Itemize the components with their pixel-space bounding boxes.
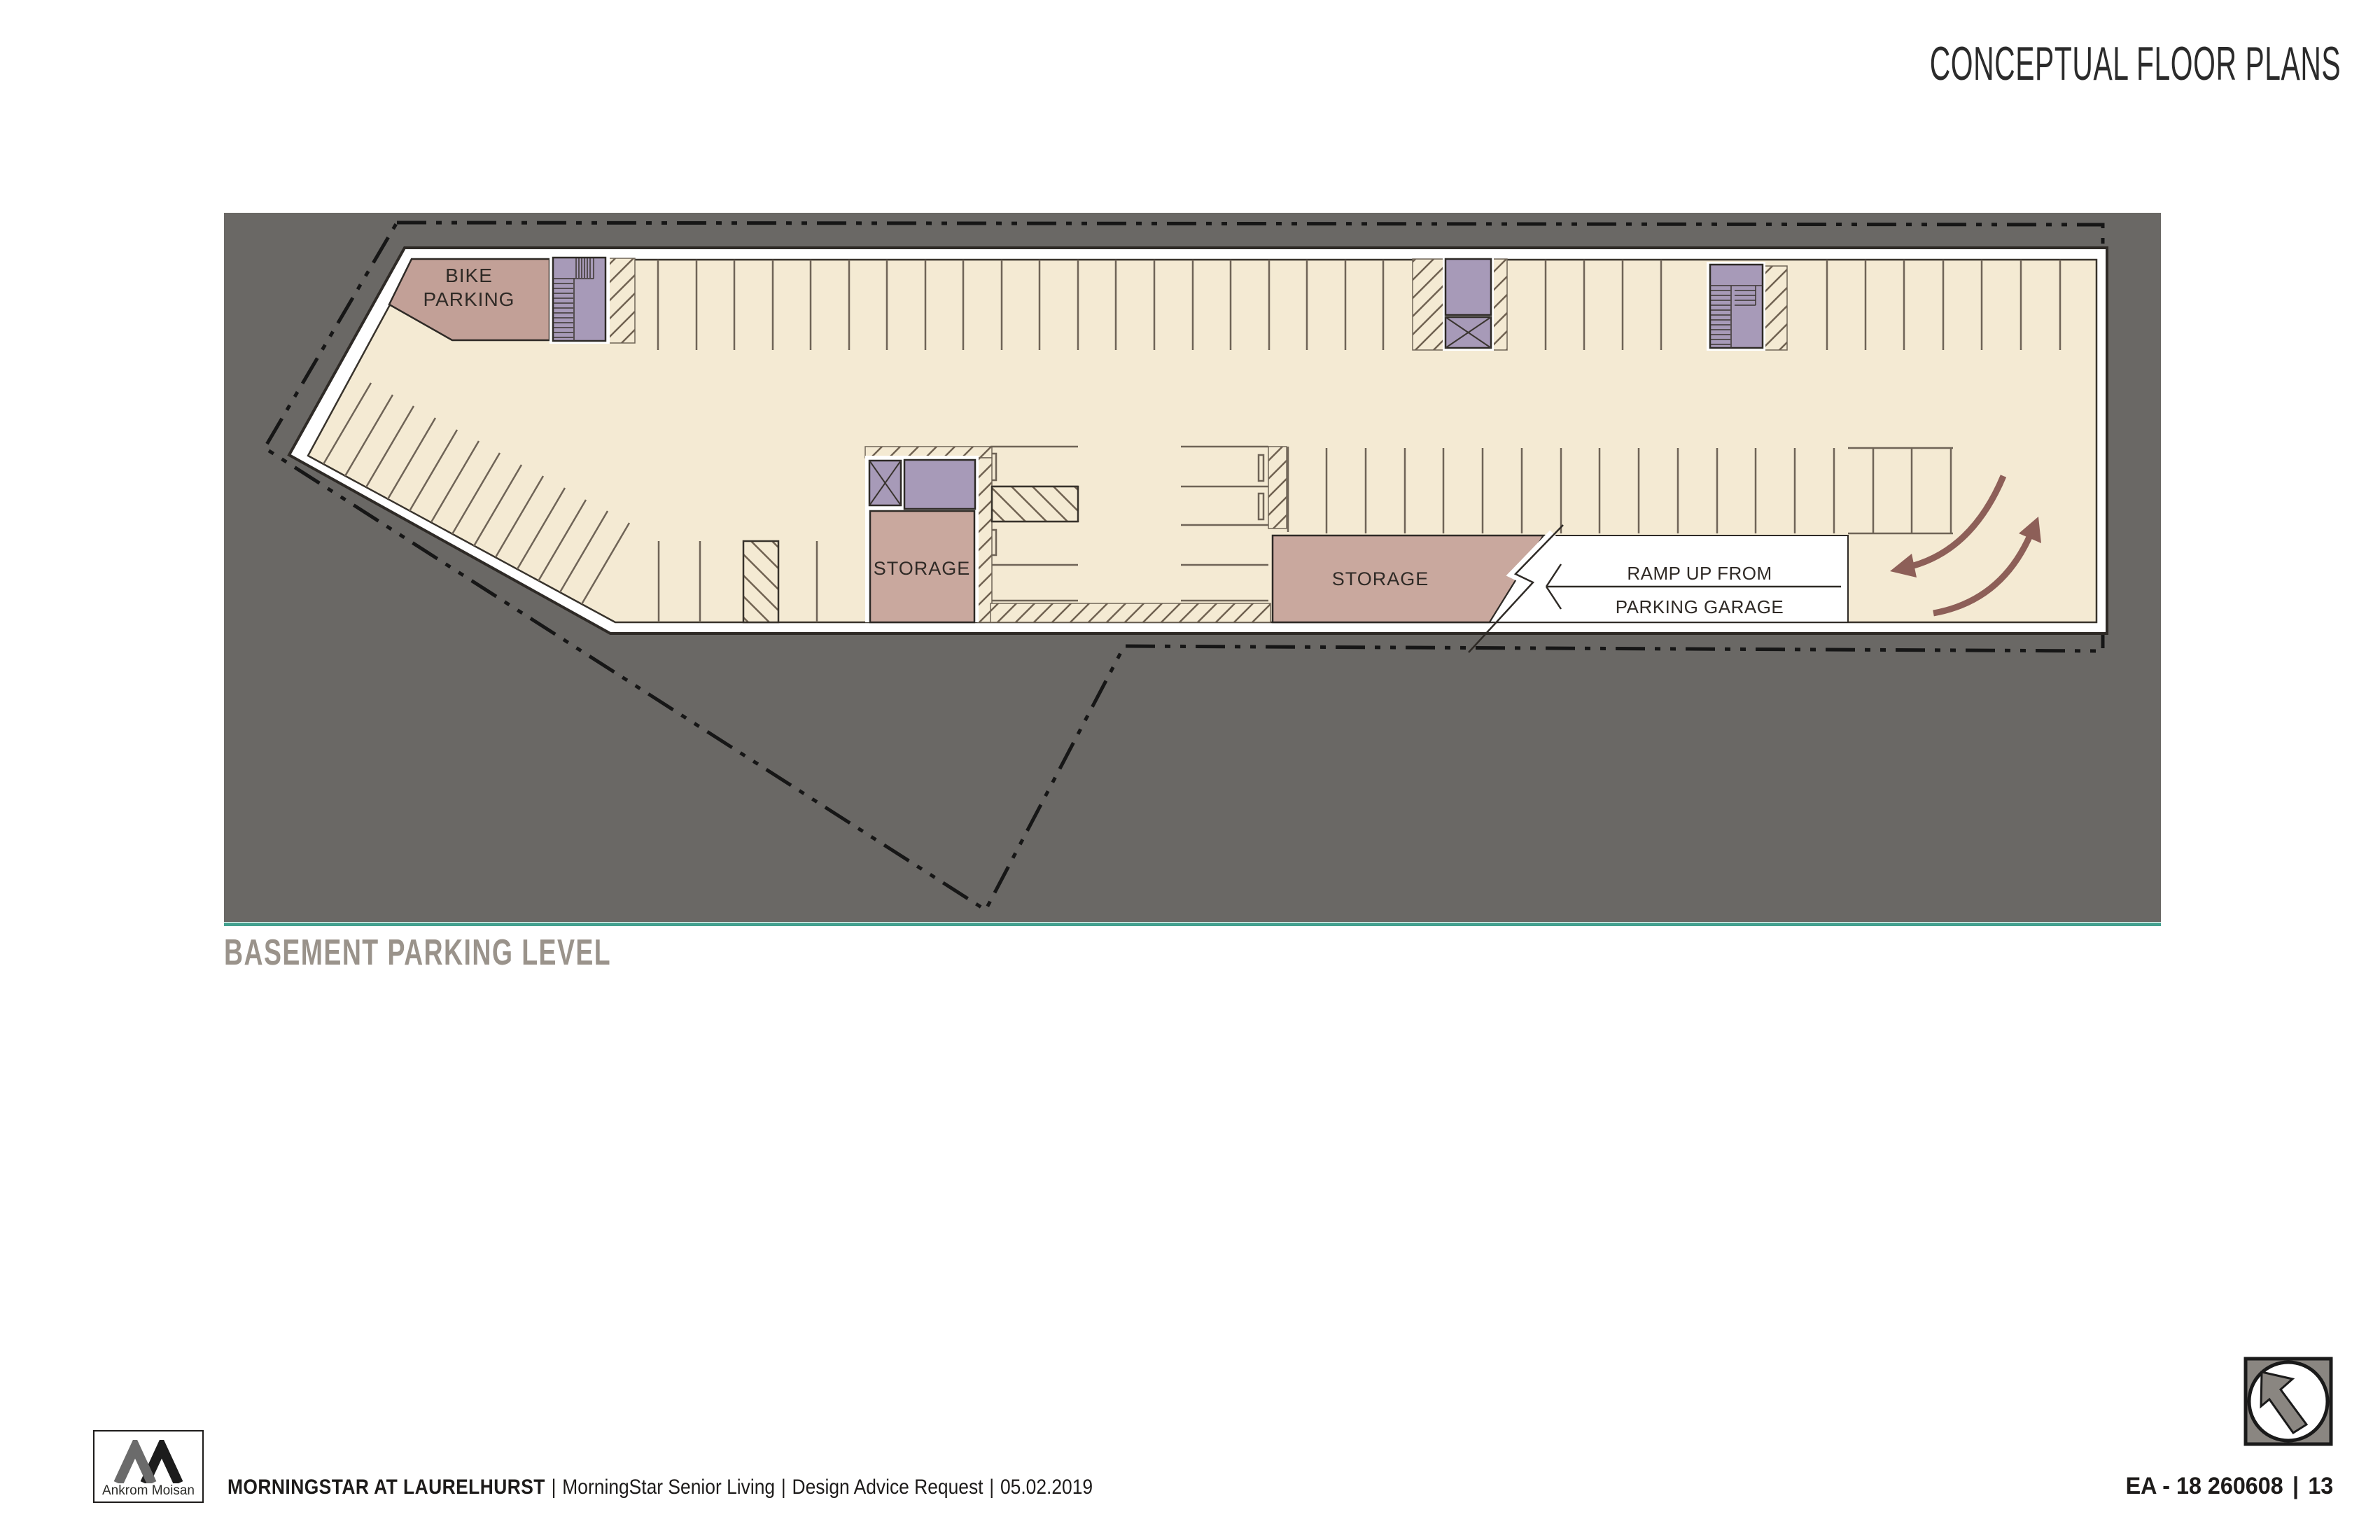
project-title-line: MORNINGSTAR AT LAURELHURST|MorningStar S… (227, 1476, 1093, 1499)
utility-room-central (904, 460, 975, 509)
ramp-label-line1: RAMP UP FROM (1627, 563, 1772, 584)
logo-caption: Ankrom Moisan (102, 1483, 195, 1499)
separator: | (545, 1476, 562, 1499)
plan-heading: BASEMENT PARKING LEVEL (224, 932, 611, 974)
presentation-sheet: { "header": { "title": "CONCEPTUAL FLOOR… (0, 0, 2380, 1540)
separator: | (775, 1476, 792, 1499)
phase-name: Design Advice Request (792, 1476, 983, 1499)
ankrom-moisan-logo-icon (110, 1440, 187, 1483)
stair-core-west (549, 255, 610, 344)
bike-parking-label-line2: PARKING (423, 288, 515, 310)
sheet-id: EA - 18 260608 (2125, 1473, 2283, 1499)
sheet-number: EA - 18 260608|13 (2125, 1473, 2333, 1500)
project-name: MORNINGSTAR AT LAURELHURST (227, 1476, 545, 1499)
storage-room-central: STORAGE (870, 511, 974, 622)
date: 05.02.2019 (1000, 1476, 1093, 1499)
client-name: MorningStar Senior Living (562, 1476, 775, 1499)
storage-east-label: STORAGE (1332, 568, 1429, 589)
stair-core-east (1707, 262, 1765, 351)
ankrom-moisan-logo: Ankrom Moisan (93, 1430, 204, 1503)
north-arrow-icon (2243, 1357, 2333, 1446)
page-number: 13 (2308, 1473, 2333, 1499)
bike-parking-label-line1: BIKE (445, 265, 493, 286)
ramp-label-line2: PARKING GARAGE (1616, 596, 1784, 617)
floor-plan: BIKE PARKING STORAGE (0, 0, 2380, 1540)
separator: | (983, 1476, 1000, 1499)
caption-divider (224, 923, 2161, 926)
stair-core-mid (1443, 255, 1494, 351)
storage-central-label: STORAGE (874, 558, 971, 579)
separator: | (2283, 1473, 2308, 1499)
